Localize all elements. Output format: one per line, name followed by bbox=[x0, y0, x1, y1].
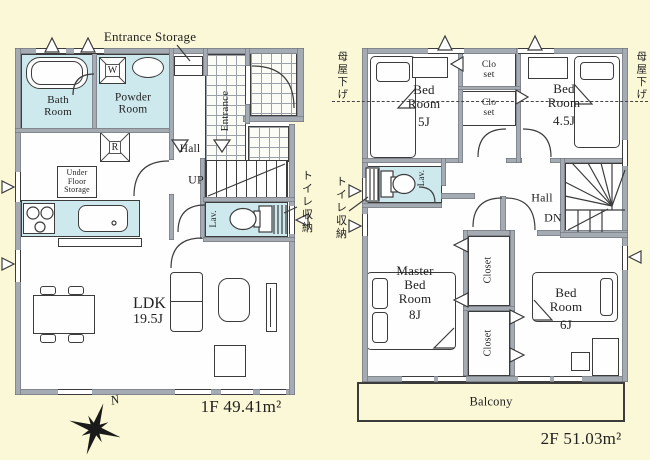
coffee-table bbox=[218, 278, 250, 322]
window bbox=[402, 376, 434, 382]
chair bbox=[40, 286, 56, 295]
room-label-bed6: Bed Room bbox=[546, 286, 586, 314]
wall bbox=[466, 230, 510, 236]
desk bbox=[592, 338, 619, 376]
room-label-entrance: Entrance bbox=[220, 91, 232, 132]
window bbox=[438, 376, 466, 382]
chair bbox=[68, 286, 84, 295]
desk bbox=[528, 57, 568, 79]
room-size-bed6: 6J bbox=[560, 318, 572, 332]
room-label-bath: Bath Room bbox=[39, 95, 77, 119]
tv-line bbox=[270, 288, 271, 327]
chair bbox=[68, 334, 84, 343]
chair bbox=[571, 352, 590, 371]
entrance-floor-lower bbox=[248, 126, 289, 162]
window bbox=[554, 376, 582, 382]
room-label-lav-1f: Lav. bbox=[209, 210, 219, 227]
wall bbox=[510, 230, 515, 376]
window bbox=[221, 389, 253, 395]
room-size-bed5: 5J bbox=[418, 115, 430, 129]
washing-machine-icon: W bbox=[99, 57, 126, 84]
label-up: UP bbox=[188, 174, 204, 187]
dining-table bbox=[33, 295, 95, 334]
room-label-ldk: LDK bbox=[133, 296, 166, 313]
side-table bbox=[214, 345, 246, 377]
chair bbox=[40, 334, 56, 343]
window bbox=[518, 376, 550, 382]
window bbox=[15, 172, 21, 202]
wall bbox=[560, 232, 628, 238]
wall bbox=[169, 194, 174, 240]
stairs-1f bbox=[205, 160, 288, 199]
pillow bbox=[600, 278, 613, 316]
room-label-master: Master Bed Room bbox=[392, 264, 438, 306]
washer-label: W bbox=[105, 64, 120, 77]
wall bbox=[15, 128, 174, 133]
wall bbox=[203, 237, 295, 242]
window bbox=[428, 48, 464, 54]
wall bbox=[463, 306, 515, 311]
room-size-bed45: 4.5J bbox=[553, 114, 575, 128]
sofa bbox=[170, 272, 203, 332]
wall bbox=[516, 48, 521, 163]
window bbox=[518, 48, 554, 54]
wall bbox=[245, 104, 250, 124]
label-area-2f: 2F 51.03m² bbox=[541, 430, 622, 448]
counter-overhang bbox=[58, 238, 142, 247]
label-closet-6j: Closet bbox=[484, 330, 495, 357]
room-lav-2f bbox=[366, 166, 442, 203]
room-label-hall-1f: Hall bbox=[180, 143, 201, 155]
pillow bbox=[372, 312, 388, 343]
label-toilet-storage-2f: トイレ収納 bbox=[335, 176, 346, 241]
wall bbox=[203, 197, 295, 202]
wall bbox=[560, 158, 565, 238]
desk bbox=[412, 57, 448, 78]
room-label-bed5: Bed Room bbox=[404, 83, 444, 111]
fridge-label: R bbox=[109, 141, 122, 154]
wall bbox=[441, 158, 446, 186]
label-eaves-right: 母屋下げ bbox=[636, 51, 647, 101]
wall bbox=[622, 48, 628, 382]
wall bbox=[92, 48, 97, 132]
room-label-lav-2f: Lav. bbox=[417, 170, 427, 186]
label-closet-upper: Clo set bbox=[477, 60, 501, 81]
pillow bbox=[580, 62, 614, 80]
label-entrance-storage: Entrance Storage bbox=[104, 30, 196, 44]
kitchen-sink bbox=[78, 205, 128, 232]
window bbox=[362, 214, 368, 236]
tv-board bbox=[266, 283, 277, 332]
window bbox=[36, 48, 66, 54]
bathtub-inner bbox=[31, 61, 83, 85]
window bbox=[622, 140, 628, 166]
wall bbox=[362, 203, 442, 208]
room-label-powder: Powder Room bbox=[108, 92, 158, 117]
pillow bbox=[372, 278, 388, 309]
wall bbox=[203, 48, 208, 76]
shelf-line bbox=[175, 65, 202, 66]
room-label-bed45: Bed Room bbox=[544, 82, 584, 110]
window bbox=[362, 178, 368, 200]
stairs-2f bbox=[565, 163, 625, 233]
entrance-storage-shelf bbox=[174, 56, 203, 76]
window bbox=[74, 48, 104, 54]
wall bbox=[458, 86, 521, 90]
wall bbox=[15, 48, 21, 395]
wall bbox=[169, 48, 174, 160]
fridge-icon: R bbox=[100, 132, 130, 162]
label-under-floor-storage: Under Floor Storage bbox=[58, 169, 96, 195]
window bbox=[260, 389, 286, 395]
pillow bbox=[376, 62, 410, 82]
wall bbox=[245, 48, 250, 66]
wall bbox=[362, 48, 628, 54]
wall bbox=[441, 193, 475, 199]
wall bbox=[15, 389, 295, 395]
room-label-hall-2f: Hall bbox=[531, 192, 552, 205]
wall bbox=[458, 48, 463, 163]
label-toilet-storage-1f: トイレ収納 bbox=[301, 170, 312, 235]
wall bbox=[243, 116, 304, 122]
porch bbox=[250, 52, 297, 116]
wall bbox=[289, 124, 295, 395]
sofa-cushion-line bbox=[171, 301, 202, 302]
stove-box bbox=[23, 203, 55, 234]
label-dn: DN bbox=[544, 212, 562, 225]
window bbox=[175, 389, 211, 395]
window bbox=[58, 389, 92, 395]
window bbox=[15, 250, 21, 282]
room-size-master: 8J bbox=[409, 308, 421, 322]
room-size-ldk: 19.5J bbox=[133, 313, 163, 328]
label-closet-lower: Clo set bbox=[477, 98, 501, 119]
label-eaves-left: 母屋下げ bbox=[337, 51, 348, 101]
wall bbox=[297, 48, 304, 122]
label-area-1f: 1F 49.41m² bbox=[201, 398, 282, 416]
wall bbox=[463, 230, 468, 376]
sink-icon bbox=[132, 57, 164, 78]
window bbox=[622, 246, 628, 270]
floorplan-canvas: W R bbox=[0, 0, 650, 460]
label-closet-master: Closet bbox=[484, 257, 495, 284]
label-balcony: Balcony bbox=[469, 395, 512, 409]
window bbox=[289, 206, 295, 234]
